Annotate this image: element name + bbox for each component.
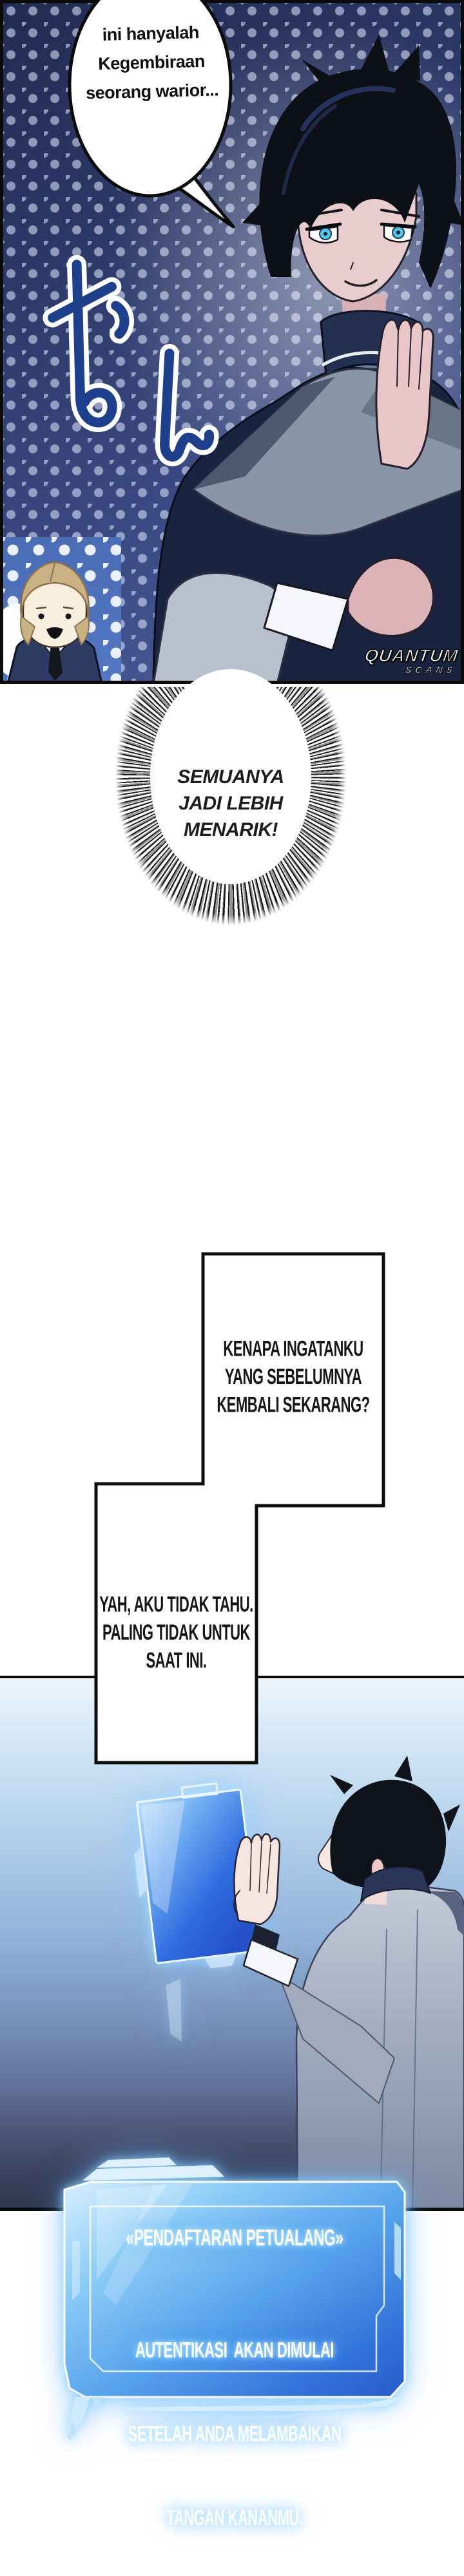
caption-line: KENAPA INGATANKU <box>203 1335 383 1363</box>
speech-line: Kegembiraan <box>72 46 231 79</box>
robed-character <box>234 1756 464 2211</box>
caption-line: PALING TIDAK UNTUK <box>96 1618 256 1646</box>
caption-line: KEMBALI SEKARANG? <box>203 1391 383 1419</box>
caption-line: YANG SEBELUMNYA <box>203 1363 383 1390</box>
system-window-line: TANGAN KANANMU. <box>67 2504 402 2532</box>
caption-box-bottom-text: YAH, AKU TIDAK TAHU. PALING TIDAK UNTUK … <box>96 1591 256 1674</box>
watermark-scans: SCANS <box>362 665 457 675</box>
caption-line: SAAT INI. <box>96 1647 256 1674</box>
system-window-line: AUTENTIKASI AKAN DIMULAI <box>67 2336 402 2364</box>
shout-line: JADI LEBIH <box>150 790 311 817</box>
shout-bubble-text: SEMUANYA JADI LEBIH MENARIK! <box>150 764 311 843</box>
system-window-title: «PENDAFTARAN PETUALANG» <box>67 2222 402 2253</box>
system-window-message: AUTENTIKASI AKAN DIMULAI SETELAH ANDA ME… <box>67 2280 402 2576</box>
watermark-quantum: QUANTUM <box>363 646 459 666</box>
speech-bubble-layer <box>0 0 464 684</box>
shout-line: MENARIK! <box>150 817 311 843</box>
scanlation-watermark: QUANTUM SCANS <box>362 646 459 675</box>
panel-polka-dot: ini hanyalah Kegembiraan seorang warior.… <box>0 0 464 684</box>
caption-box-top-text: KENAPA INGATANKU YANG SEBELUMNYA KEMBALI… <box>203 1335 383 1419</box>
system-window-line: SETELAH ANDA MELAMBAIKAN <box>67 2420 402 2448</box>
speech-line: ini hanyalah <box>71 17 230 50</box>
shout-line: SEMUANYA <box>150 764 311 790</box>
caption-boxes-outline <box>0 1252 464 1774</box>
raised-right-hand <box>234 1834 280 1924</box>
speech-line: seorang warior... <box>73 75 232 108</box>
caption-line: YAH, AKU TIDAK TAHU. <box>96 1591 256 1618</box>
comic-page: ini hanyalah Kegembiraan seorang warior.… <box>0 0 464 2576</box>
speech-bubble-text: ini hanyalah Kegembiraan seorang warior.… <box>71 17 231 108</box>
